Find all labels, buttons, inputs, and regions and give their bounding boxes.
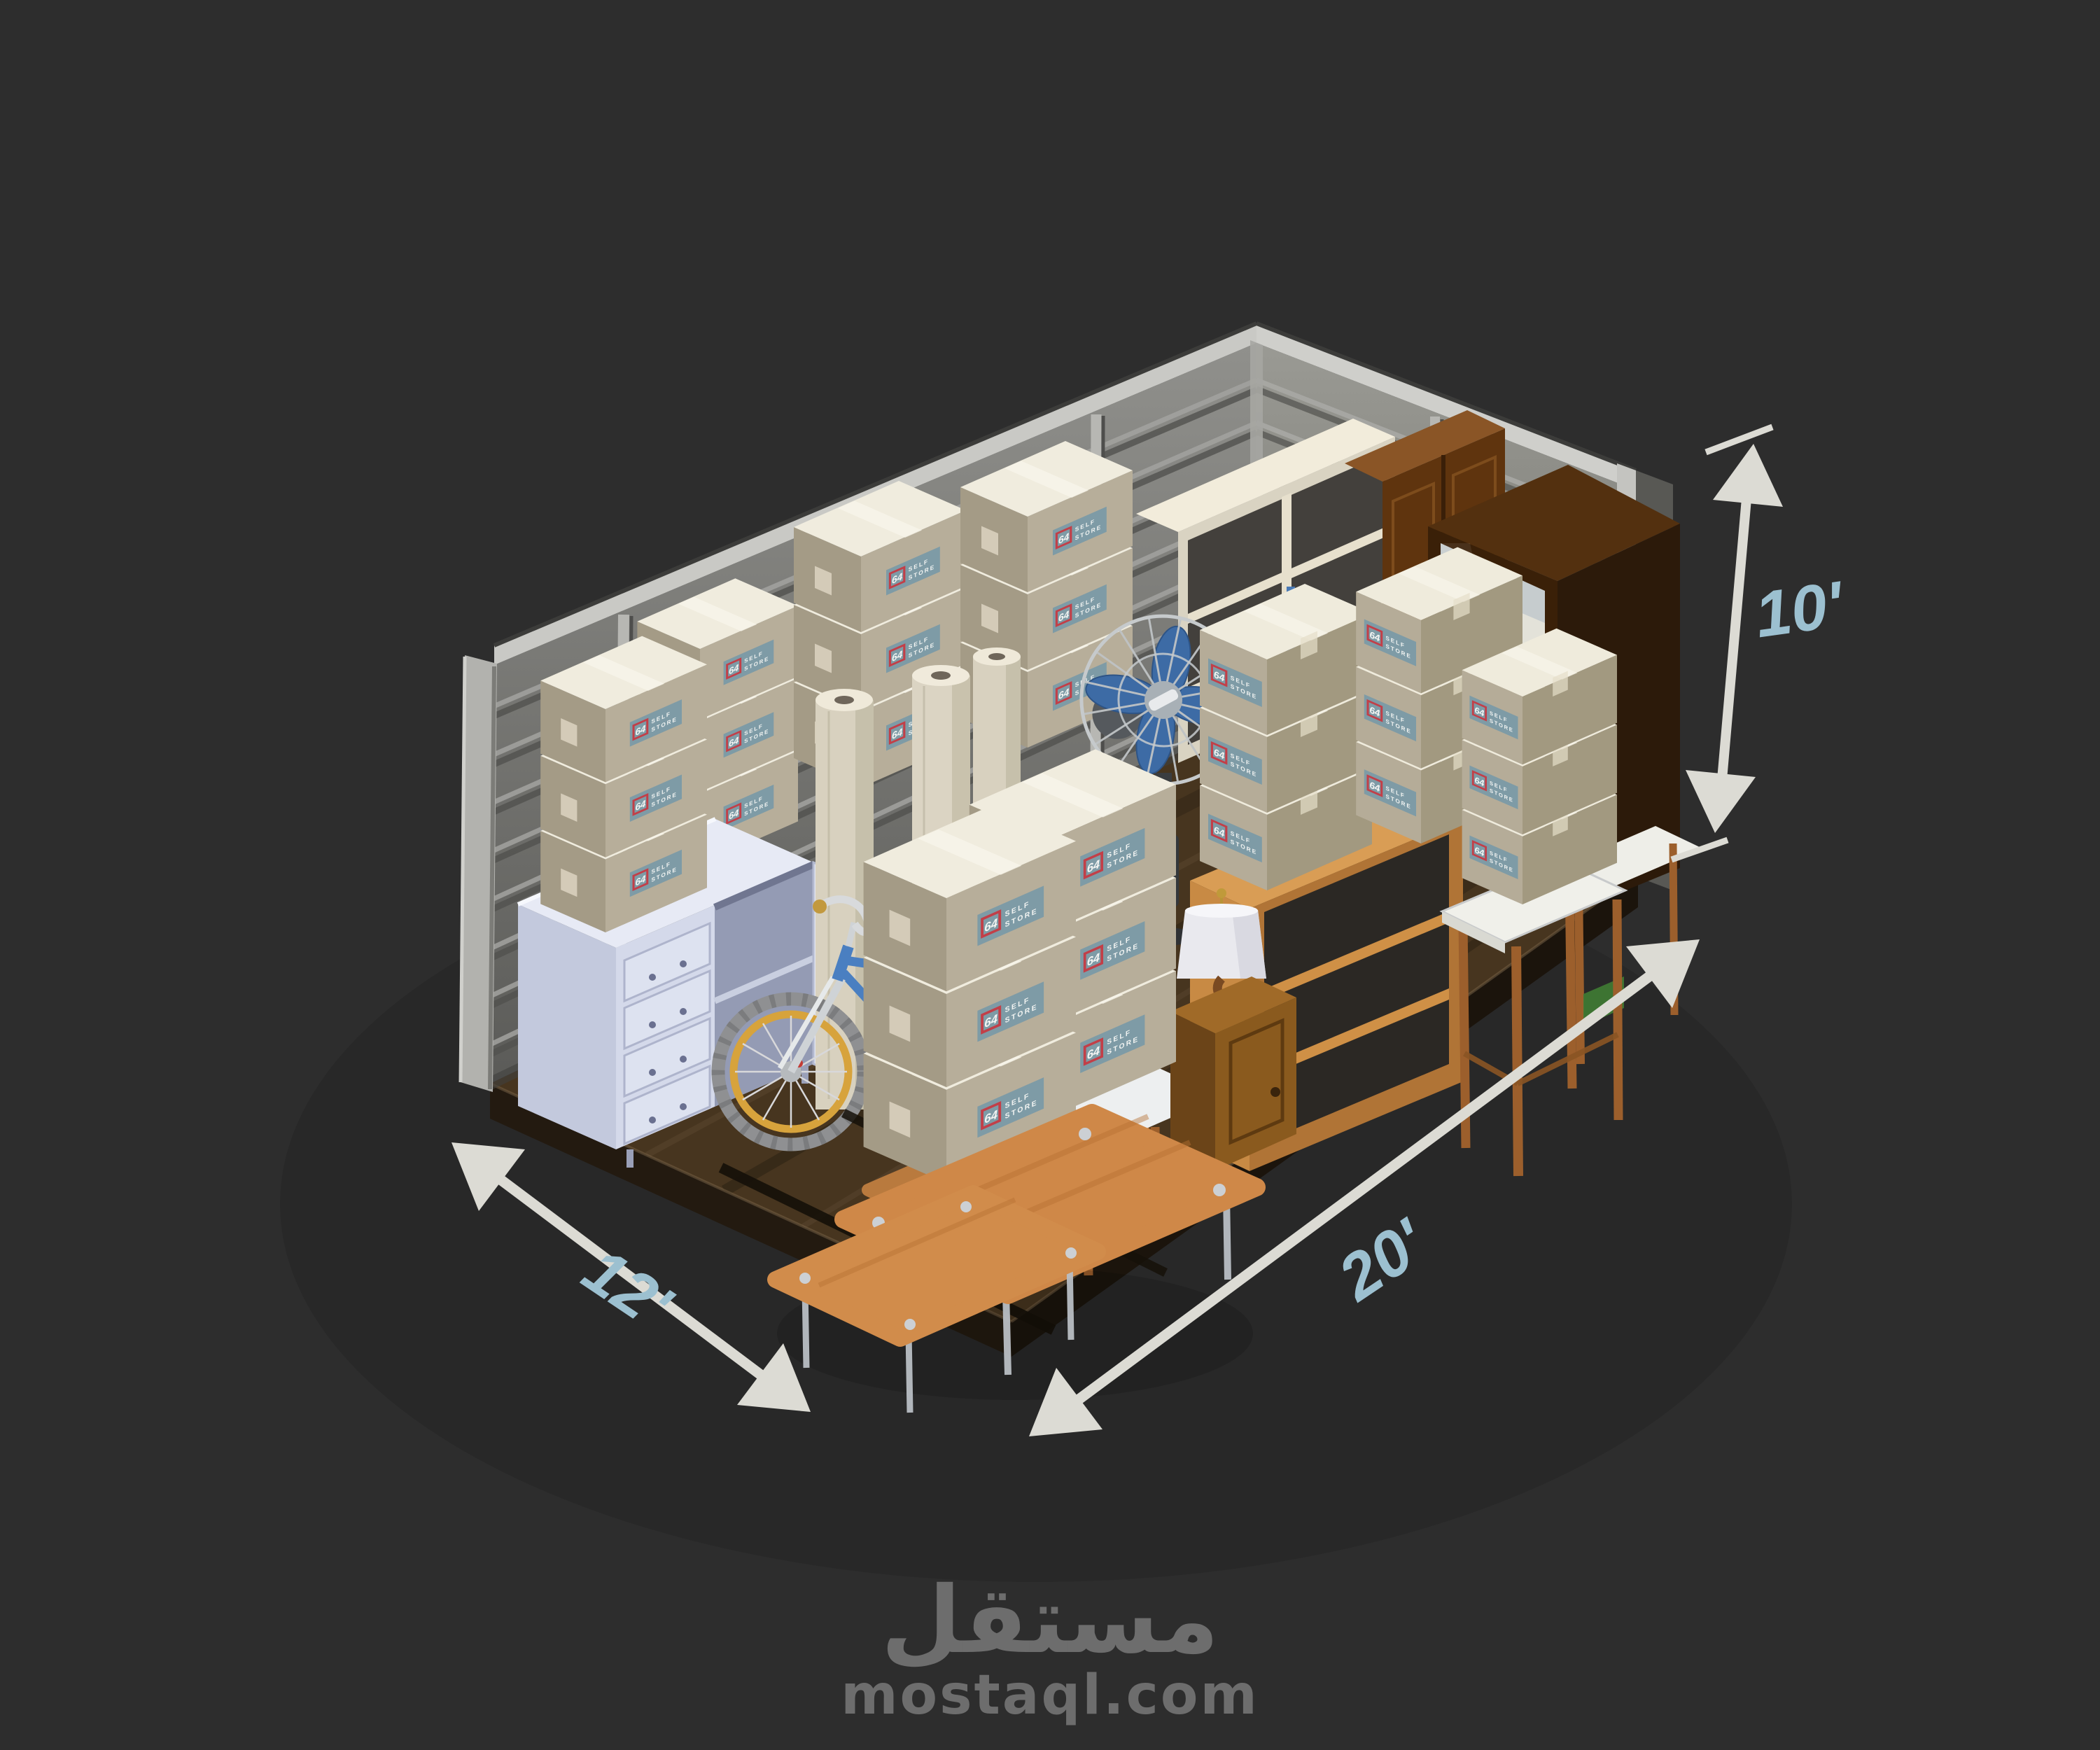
- storage-unit-render: 64 SELF STORE: [0, 0, 2100, 1750]
- box-stack: [1200, 584, 1372, 890]
- lamp-finial: [1217, 888, 1226, 898]
- box-stack-on-dresser: [540, 636, 707, 932]
- watermark-site: mostaql.com: [841, 1664, 1259, 1727]
- box-stack-on-stool: [1462, 629, 1617, 904]
- watermark-logo: مستقل: [881, 1567, 1219, 1674]
- height-label: 10': [1751, 568, 1849, 652]
- watermark: مستقل mostaql.com: [841, 1567, 1259, 1727]
